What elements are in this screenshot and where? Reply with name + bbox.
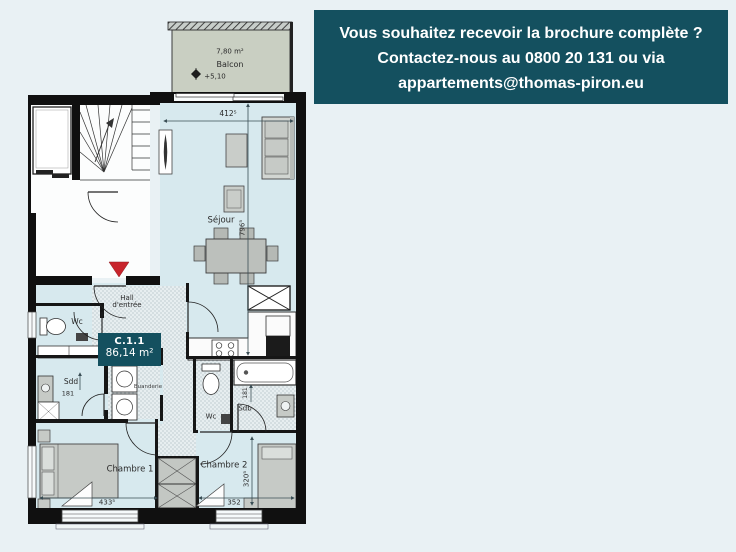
banner-email: appartements@thomas-piron.eu <box>314 71 728 96</box>
listing-floorplan-image: 7,80 m² Balcon +5,10 412⁵ Séjour 796⁵ Ha… <box>0 0 736 552</box>
room-label-wc-mid: Wc <box>206 413 217 420</box>
room-label-sdb: Sdb <box>238 405 251 412</box>
balcony-level-label: +5,10 <box>204 73 225 80</box>
room-label-sejour: Séjour <box>207 217 234 226</box>
brochure-banner: Vous souhaitez recevoir la brochure comp… <box>314 10 728 104</box>
unit-code: C.1.1 <box>98 336 161 347</box>
room-label-wc-top: Wc <box>71 318 83 326</box>
room-label-sdd: Sdd <box>64 378 78 386</box>
dim-chambre2-width: 352 <box>227 499 240 506</box>
banner-line-2: Contactez-nous au 0800 20 131 ou via <box>314 46 728 71</box>
balcony-label: Balcon <box>217 61 244 69</box>
dim-chambre2-depth: 320⁵ <box>243 471 250 487</box>
dim-sejour-depth: 796⁵ <box>239 220 246 236</box>
unit-area: 86,14 m² <box>98 347 161 359</box>
unit-badge: C.1.1 86,14 m² <box>98 333 161 366</box>
dim-chambre1-width: 433⁵ <box>99 499 115 506</box>
dim-sejour-width: 412⁵ <box>219 110 236 118</box>
room-label-chambre2: Chambre 2 <box>201 462 248 471</box>
room-label-buanderie: Buanderie <box>134 385 162 391</box>
room-label-hall: Hall d'entrée <box>107 295 147 310</box>
balcony <box>168 22 293 93</box>
balcony-area-label: 7,80 m² <box>216 48 243 55</box>
banner-line-1: Vous souhaitez recevoir la brochure comp… <box>314 21 728 46</box>
room-label-chambre1: Chambre 1 <box>107 466 154 475</box>
dim-sdb-width: 181 <box>243 387 249 398</box>
dim-sdd-width: 181 <box>62 391 74 398</box>
